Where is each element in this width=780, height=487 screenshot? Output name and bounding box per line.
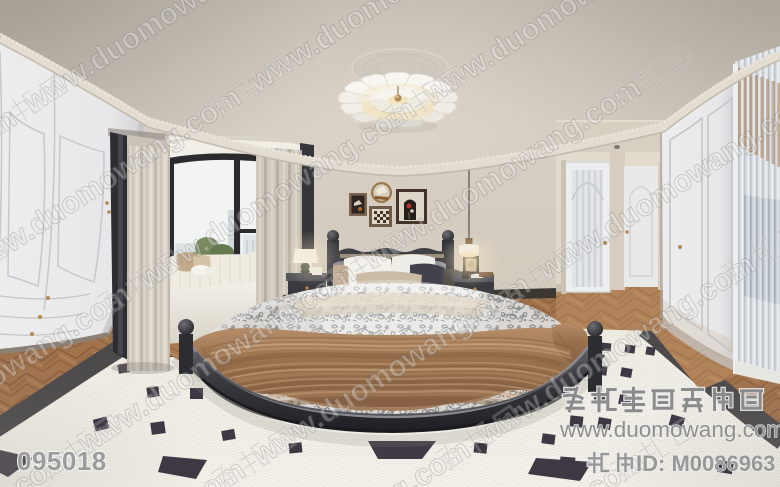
svg-text:095018: 095018 xyxy=(17,446,107,476)
svg-text:ID: M0086963: ID: M0086963 xyxy=(636,451,775,476)
svg-text:www.duomowang.com: www.duomowang.com xyxy=(559,417,780,442)
